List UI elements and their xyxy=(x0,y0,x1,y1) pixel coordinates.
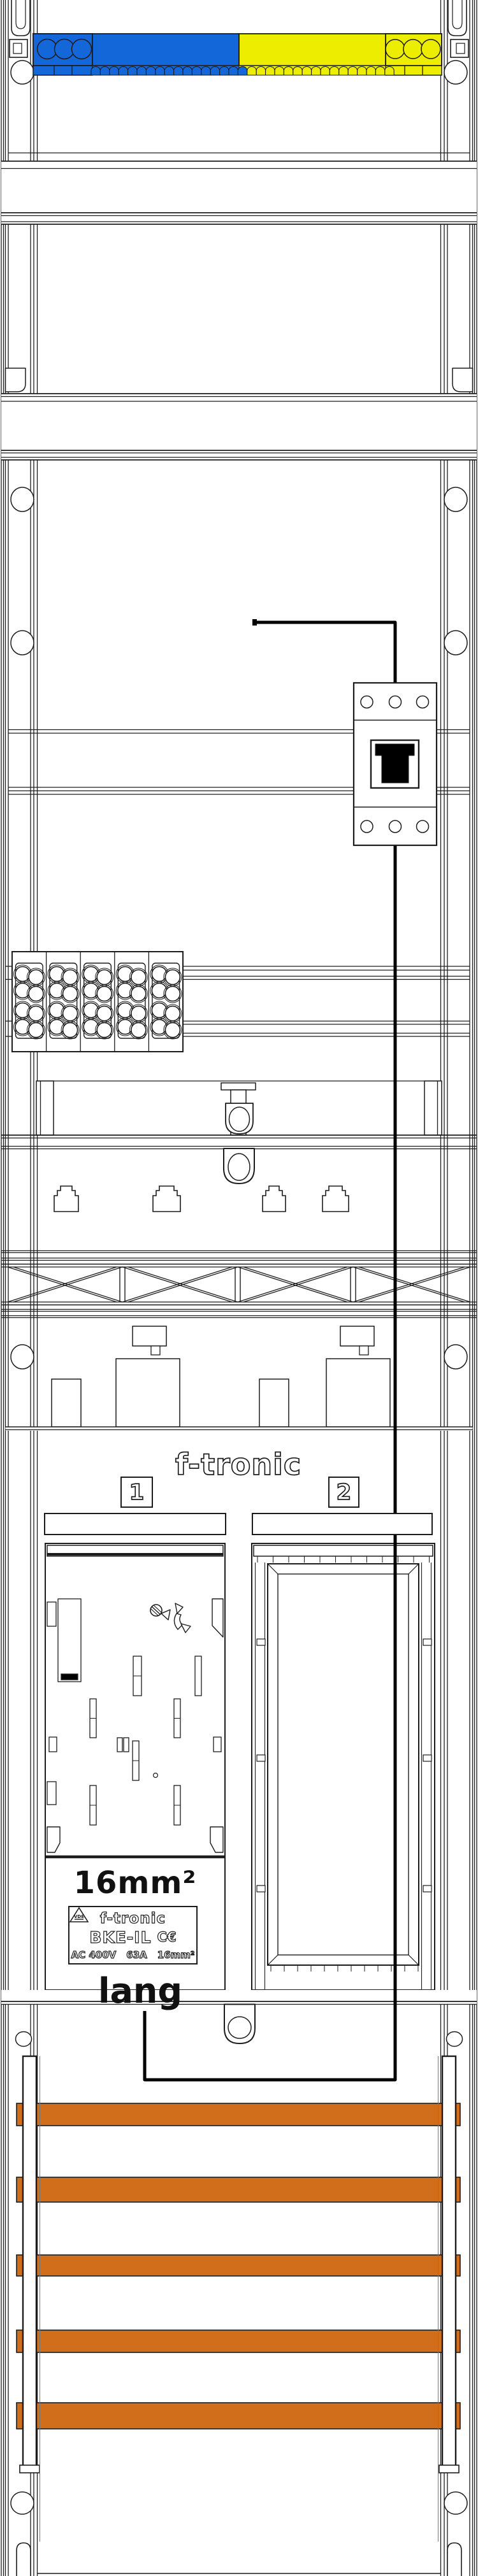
terminal-clamp-hole xyxy=(97,987,112,1001)
support-column xyxy=(116,1359,180,1427)
support-tab xyxy=(259,1379,289,1427)
terminal-comb-tooth xyxy=(229,67,238,76)
bottom-slot-left xyxy=(17,2543,31,2576)
vent-cutout xyxy=(263,1186,286,1212)
product-model-label: BKE-IL xyxy=(89,1928,151,1947)
frame-step-right xyxy=(424,1081,442,1135)
plate2-clip-mark xyxy=(423,1755,431,1761)
terminal-comb-tooth xyxy=(238,67,247,75)
terminal-comb-tooth xyxy=(119,67,127,76)
plate2-clip-mark xyxy=(257,1885,265,1892)
plate-slot xyxy=(58,1599,81,1682)
terminal-comb-tooth xyxy=(146,67,155,76)
label-strip-field-1 xyxy=(44,1513,226,1535)
rail-foot-right xyxy=(453,368,473,392)
vent-cutout xyxy=(322,1186,349,1212)
side-rail-hole xyxy=(11,1345,34,1369)
side-rail-hole xyxy=(444,631,467,655)
plate-slot xyxy=(47,1602,56,1626)
top-slot-left xyxy=(11,0,30,36)
side-rail-hole xyxy=(444,487,467,512)
rating-current: 63A xyxy=(126,1949,147,1961)
mount-bracket-right-notch xyxy=(456,43,465,54)
terminal-comb-tooth xyxy=(284,67,293,75)
terminal-comb-tooth xyxy=(91,67,100,75)
terminal-clamp-hole xyxy=(165,1006,180,1021)
busbar xyxy=(17,2330,460,2352)
busbar xyxy=(17,2177,460,2202)
plate-pin-hole xyxy=(154,1773,158,1778)
terminal-comb-tooth xyxy=(321,66,330,75)
cabinet-linework xyxy=(0,0,478,2576)
terminal-comb-tooth xyxy=(293,67,302,75)
n-terminal-lip xyxy=(33,66,92,75)
terminal-comb-tooth xyxy=(375,67,384,75)
terminal-clamp-hole xyxy=(63,1006,78,1021)
terminal-comb-tooth xyxy=(100,67,109,76)
terminal-clamp-hole xyxy=(131,970,146,985)
vent-cutout xyxy=(153,1186,180,1212)
vde-triangle-icon: VDE xyxy=(69,1907,89,1923)
cable-length-note: lang xyxy=(76,1971,204,2011)
side-rail-hole xyxy=(11,487,34,512)
ce-mark: C€ xyxy=(157,1929,177,1945)
side-rail-hole xyxy=(444,61,467,84)
fuse-switch-terminal xyxy=(361,696,373,708)
mount-clip-tab xyxy=(359,1346,368,1355)
fuse-switch-terminal xyxy=(389,696,402,708)
terminal-comb-tooth xyxy=(275,67,284,76)
meter-cable xyxy=(255,622,395,683)
side-rail-hole xyxy=(444,2492,467,2514)
mount-clip xyxy=(340,1326,374,1346)
pe-terminal-hole xyxy=(386,39,405,59)
meter-field-2-badge: 2 xyxy=(328,1477,359,1508)
plate2-clip-mark xyxy=(257,1755,265,1761)
terminal-comb-tooth xyxy=(183,67,192,75)
rating-voltage: AC 400V xyxy=(71,1949,117,1961)
rail-foot-left xyxy=(6,368,26,392)
terminal-clamp-hole xyxy=(165,987,180,1001)
busbar-support-foot xyxy=(439,2465,459,2473)
plate-slot xyxy=(195,1656,201,1696)
plate2-clip-mark xyxy=(423,1639,431,1645)
terminal-comb-tooth xyxy=(110,67,119,76)
terminal-comb-tooth xyxy=(330,67,338,76)
terminal-clamp-hole xyxy=(165,1023,180,1038)
terminal-clamp-hole xyxy=(131,987,146,1001)
busbar-support-foot xyxy=(20,2465,40,2473)
terminal-clamp-hole xyxy=(29,987,43,1001)
rating-plate-brand: f-tronic xyxy=(100,1910,166,1927)
terminal-comb-tooth xyxy=(339,66,348,75)
terminal-comb-tooth xyxy=(256,67,265,76)
terminal-comb-tooth xyxy=(358,66,366,75)
plate-slot xyxy=(47,1782,56,1805)
terminal-clamp-hole xyxy=(131,1006,146,1021)
meter-field-2-number: 2 xyxy=(337,1480,352,1505)
plate2-clip-mark xyxy=(423,1885,431,1892)
rating-wire-size: 16mm² xyxy=(157,1949,195,1961)
terminal-comb-tooth xyxy=(192,67,201,76)
terminal-comb-tooth xyxy=(385,66,394,75)
meter-cable-end xyxy=(252,619,257,626)
window-frame-inner xyxy=(278,1574,409,1955)
side-rail-hole xyxy=(447,2032,463,2047)
terminal-clamp-hole xyxy=(97,1006,112,1021)
terminal-clamp-hole xyxy=(29,1006,43,1021)
meter-plate-2-topbar xyxy=(254,1545,433,1556)
mount-clip-tab xyxy=(151,1346,160,1355)
terminal-comb-tooth xyxy=(312,67,321,76)
support-column xyxy=(326,1359,390,1427)
terminal-comb-tooth xyxy=(366,66,375,75)
top-slot-right xyxy=(448,0,467,36)
vent-cutout xyxy=(54,1186,78,1212)
side-rail-hole xyxy=(16,2032,32,2047)
terminal-clamp-hole xyxy=(29,1023,43,1038)
terminal-comb-tooth xyxy=(174,67,183,76)
pe-terminal-hole xyxy=(403,39,423,59)
terminal-clamp-hole xyxy=(131,1023,146,1038)
fuse-switch-terminal xyxy=(417,696,429,708)
side-rail-hole xyxy=(444,1345,467,1369)
terminal-comb-tooth xyxy=(247,66,256,75)
terminal-clamp-hole xyxy=(29,970,43,985)
busbar xyxy=(17,2103,460,2126)
terminal-comb-tooth xyxy=(348,67,357,76)
busbar-support-post xyxy=(23,2056,36,2470)
brand-logo-text: f-tronic xyxy=(169,1447,308,1482)
terminal-comb-tooth xyxy=(164,67,173,76)
wire-size-label: 16mm² xyxy=(45,1865,225,1901)
rating-values: AC 400V 63A 16mm² xyxy=(71,1949,195,1961)
plate-slot xyxy=(61,1674,78,1680)
vde-letters: VDE xyxy=(74,1914,84,1919)
mount-bracket-left-notch xyxy=(13,43,22,54)
keyhole-hole xyxy=(229,1107,250,1131)
terminal-clamp-hole xyxy=(63,970,78,985)
terminal-clamp-hole xyxy=(165,970,180,985)
terminal-clamp-hole xyxy=(97,1023,112,1038)
terminal-comb-tooth xyxy=(128,67,137,76)
support-tab xyxy=(52,1379,81,1427)
fuse-switch-terminal xyxy=(389,820,402,833)
terminal-comb-tooth xyxy=(137,67,146,76)
terminal-clamp-hole xyxy=(63,1023,78,1038)
side-rail-hole xyxy=(11,2492,34,2514)
terminal-comb-tooth xyxy=(156,67,164,76)
terminal-comb-tooth xyxy=(302,67,311,76)
terminal-comb-tooth xyxy=(210,67,219,76)
terminal-comb-tooth xyxy=(266,67,275,76)
meter-cabinet-diagram: f-tronic 1 2 16mm² f-tronic VDE BKE-IL C… xyxy=(0,0,478,2576)
side-rail-hole xyxy=(11,61,34,84)
side-rail-hole xyxy=(11,631,34,655)
terminal-clamp-hole xyxy=(63,987,78,1001)
plate-slot xyxy=(117,1738,122,1752)
terminal-comb-tooth xyxy=(201,66,210,75)
terminal-clamp-hole xyxy=(97,970,112,985)
plate2-clip-mark xyxy=(257,1639,265,1645)
mount-clip xyxy=(133,1326,166,1346)
busbar xyxy=(17,2255,460,2276)
plate-slot xyxy=(49,1737,57,1752)
plate-slot xyxy=(124,1738,129,1752)
meter-field-1-badge: 1 xyxy=(120,1477,153,1508)
rail-band xyxy=(1,161,477,224)
rating-plate: f-tronic VDE BKE-IL C€ AC 400V 63A 16mm² xyxy=(68,1906,198,1964)
center-tab-cap xyxy=(221,1083,256,1090)
keyhole-hole xyxy=(228,1154,250,1180)
bottom-slot-right xyxy=(447,2543,461,2576)
label-strip-field-2 xyxy=(252,1513,433,1535)
frame-step-left xyxy=(36,1081,54,1135)
pe-terminal-hole xyxy=(421,39,440,59)
keyhole-hole xyxy=(228,2017,251,2038)
fuse-switch-terminal xyxy=(417,820,429,833)
n-terminal-hole xyxy=(72,39,92,59)
meter-field-1-number: 1 xyxy=(129,1480,145,1505)
busbar xyxy=(17,2403,460,2429)
plate-slot xyxy=(214,1737,221,1752)
busbar-support-post xyxy=(442,2056,456,2470)
fuse-switch-terminal xyxy=(361,820,373,833)
terminal-comb-tooth xyxy=(220,67,229,76)
